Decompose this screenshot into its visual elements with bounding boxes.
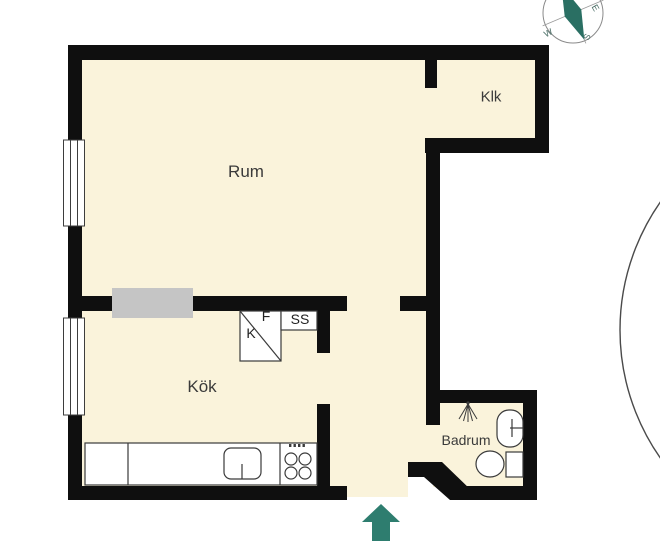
compass-south-label: S	[581, 32, 593, 42]
sink-icon	[224, 448, 261, 479]
freezer-label: F	[262, 308, 271, 324]
room-label-closet: Klk	[481, 89, 502, 106]
room-label-kitchen: Kök	[187, 377, 216, 397]
washbasin-icon	[497, 410, 523, 447]
fixtures-layer: E W S	[0, 0, 660, 550]
window-icon	[64, 140, 85, 226]
compass-west-label: W	[542, 26, 555, 39]
kitchen-counter	[85, 443, 317, 485]
room-label-bathroom: Badrum	[441, 432, 490, 448]
room-label-living-room: Rum	[228, 162, 264, 182]
window-icon	[64, 318, 85, 415]
wall-entrance-diagonal	[408, 462, 472, 500]
toilet-icon	[476, 451, 523, 477]
compass-rose-icon: E W S	[530, 0, 617, 56]
fridge-label: K	[246, 325, 255, 341]
compass-east-label: E	[590, 3, 602, 13]
entrance-arrow	[362, 504, 400, 541]
shower-icon	[459, 401, 477, 422]
pantry-label: SS	[291, 311, 310, 327]
building-arc	[620, 107, 660, 550]
floorplan-canvas: E W S Rum Klk Kök Badrum F K SS	[0, 0, 660, 550]
wardrobe-block	[112, 288, 193, 318]
